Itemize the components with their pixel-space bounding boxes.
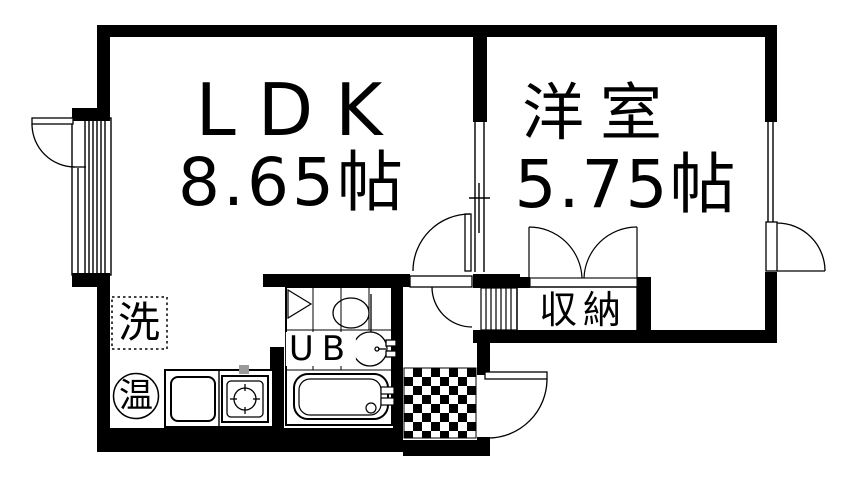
wall-divider-upper	[473, 25, 487, 122]
ldk-room-label: LDK	[196, 74, 405, 146]
hallway-door	[410, 276, 472, 327]
left-window	[72, 118, 111, 275]
bedroom-exterior-door	[766, 222, 825, 271]
door-swing-arc-left	[529, 227, 582, 278]
kitchen-counter	[165, 365, 273, 427]
ldk-size-label: 8.65帖	[178, 150, 406, 216]
ldk-interior-door	[413, 214, 471, 271]
floor-plan: LDK 8.65帖 洋室 5.75帖 収納 UB 洗 温	[0, 0, 849, 480]
entrance-door	[485, 372, 547, 438]
toilet	[333, 294, 371, 332]
door-swing-arc	[432, 287, 472, 327]
bathtub	[294, 374, 394, 419]
wall-genkan-right-upper	[477, 330, 490, 375]
water-heater-label: 温	[119, 379, 153, 413]
bedroom-window	[768, 122, 773, 222]
door-leaf	[465, 214, 471, 271]
wall-hallway-top	[263, 274, 410, 287]
room-divider-sliding-door	[469, 122, 490, 272]
wall-bottom-left	[97, 428, 403, 452]
wall-storage-post-right	[637, 277, 651, 335]
wall-bath-right	[393, 274, 403, 452]
door-swing-arc	[777, 223, 825, 271]
wall-left-upper	[97, 25, 110, 110]
door-leaf	[32, 118, 73, 124]
storage-label: 収納	[539, 291, 627, 329]
genkan-checker-floor	[404, 368, 476, 438]
door-leaf	[410, 276, 472, 287]
storage-sliding-panel	[481, 288, 517, 330]
wall-right-upper	[765, 25, 777, 122]
bath-door-symbol	[288, 290, 311, 318]
door-swing-arc-right	[584, 227, 637, 278]
wall-top	[97, 25, 777, 37]
unit-bath-label: UB	[286, 332, 356, 366]
storage-track	[530, 278, 637, 287]
wall-genkan-bottom	[403, 440, 490, 456]
door-swing-arc	[32, 124, 75, 167]
door-swing-arc	[413, 214, 470, 271]
faucet	[239, 365, 249, 374]
western-room-label: 洋室	[522, 82, 678, 144]
door-swing-arc	[488, 379, 547, 438]
wall-left-lower	[97, 285, 110, 452]
door-leaf	[766, 222, 777, 271]
wash-basin	[353, 332, 396, 366]
door-leaf	[485, 372, 547, 379]
wall-divider-post	[473, 274, 520, 288]
ldk-exterior-door	[32, 118, 86, 167]
western-room-size-label: 5.75帖	[515, 152, 738, 218]
washer-label: 洗	[118, 302, 160, 344]
storage-double-doors	[529, 227, 637, 278]
